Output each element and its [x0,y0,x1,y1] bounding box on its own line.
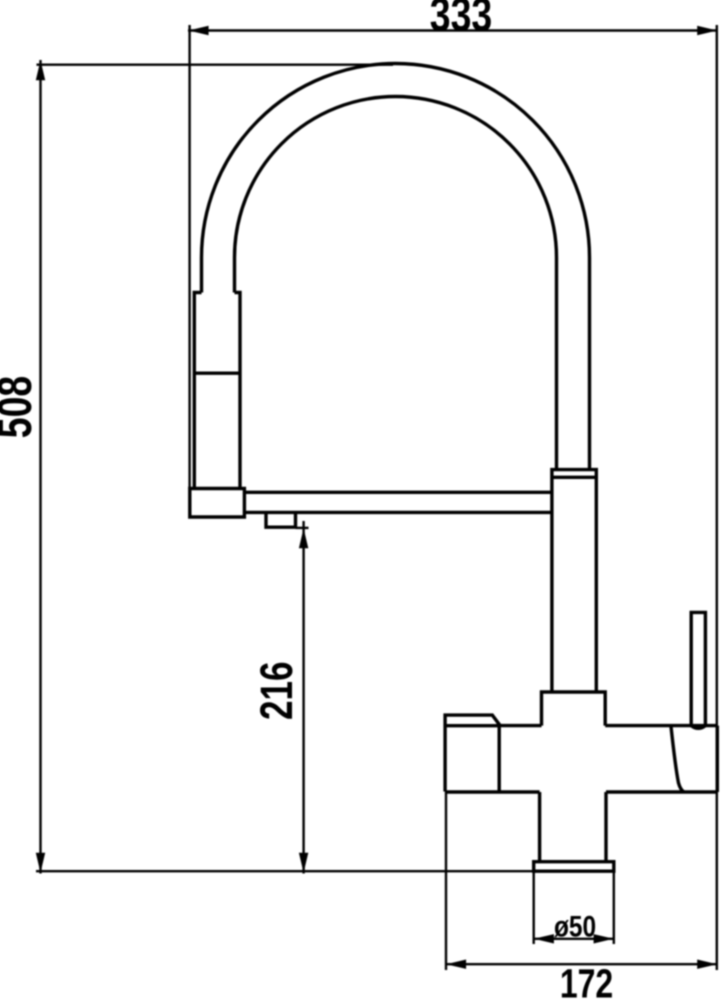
svg-text:333: 333 [430,0,492,42]
svg-text:508: 508 [0,376,42,438]
svg-text:ø50: ø50 [554,910,596,943]
svg-text:216: 216 [251,661,302,720]
svg-text:172: 172 [560,961,613,1000]
